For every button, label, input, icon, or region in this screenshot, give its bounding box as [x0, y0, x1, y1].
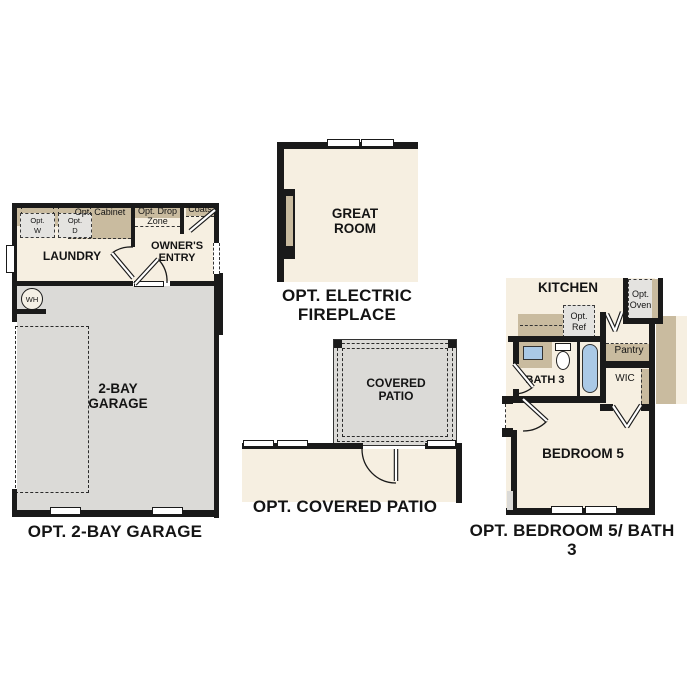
patio-caption: OPT. COVERED PATIO — [250, 497, 440, 516]
entry-opening-dashed — [213, 243, 220, 274]
bathtub — [582, 344, 598, 393]
coats-label: Coats — [184, 204, 216, 214]
wall — [12, 281, 133, 286]
wall — [219, 273, 223, 335]
garage-room-label: 2-BAY GARAGE — [73, 381, 163, 411]
garage-caption: OPT. 2-BAY GARAGE — [23, 522, 207, 541]
bedroom-window — [551, 506, 583, 514]
wall — [600, 312, 606, 403]
wall — [513, 389, 519, 397]
outside-floor — [676, 316, 687, 404]
pantry-shelf-dash — [606, 343, 652, 344]
wall — [641, 404, 655, 411]
wall — [658, 278, 663, 324]
house-window — [243, 440, 274, 447]
garage-window — [50, 507, 81, 515]
covered-patio-label: COVERED PATIO — [356, 377, 436, 404]
owners-entry-label: OWNER'S ENTRY — [142, 240, 212, 265]
pantry-label: Pantry — [606, 345, 652, 356]
bedroom-window — [585, 506, 617, 514]
kitchen-counter-dash — [520, 325, 562, 326]
water-heater-label: WH — [26, 295, 39, 304]
wic-label: WIC — [604, 373, 646, 384]
bath-sink — [523, 346, 543, 360]
floorplan-sheet: Opt. W Opt. D WH Opt. Cabinet Opt. Drop … — [0, 0, 687, 687]
bedroom-opening-dashed — [505, 404, 506, 428]
great-room-window — [361, 139, 394, 147]
coats-dash — [186, 216, 214, 217]
wall — [600, 404, 613, 411]
water-heater: WH — [21, 288, 43, 310]
wall — [502, 396, 513, 404]
opt-washer-label: Opt. W — [28, 216, 48, 235]
great-room-caption: OPT. ELECTRIC FIREPLACE — [257, 286, 437, 324]
opt-oven-label: Opt. Oven — [629, 289, 652, 311]
opt-oven-box: Opt. Oven — [628, 279, 653, 320]
house-interior-floor — [242, 449, 462, 502]
wall — [277, 142, 284, 282]
wall — [577, 342, 580, 396]
toilet-bowl — [556, 351, 570, 370]
opt-ref-label: Opt. Ref — [568, 311, 590, 333]
patio-post — [334, 340, 342, 348]
opt-dryer-label: Opt. D — [65, 216, 85, 235]
wall — [508, 336, 606, 342]
wall — [170, 281, 219, 286]
bath3-label: BATH 3 — [516, 374, 574, 386]
wall — [15, 309, 46, 314]
opt-cabinet-label: Opt. Cabinet — [70, 207, 130, 217]
opt-drop-zone-label: Opt. Drop Zone — [133, 206, 182, 226]
opt-ref-box: Opt. Ref — [563, 305, 595, 338]
wall — [456, 443, 462, 503]
bedroom5-label: BEDROOM 5 — [533, 446, 633, 461]
great-room-label: GREAT ROOM — [313, 206, 397, 236]
patio-post — [448, 340, 456, 348]
garage-door-sill — [134, 281, 164, 287]
kitchen-label: KITCHEN — [532, 280, 604, 295]
wall — [600, 361, 655, 368]
house-window — [277, 440, 308, 447]
wall — [12, 489, 17, 517]
great-room-window — [327, 139, 360, 147]
wall — [12, 510, 219, 517]
laundry-label: LAUNDRY — [37, 250, 107, 263]
toilet-tank — [555, 343, 571, 351]
bedroom-caption: OPT. BEDROOM 5/ BATH 3 — [464, 521, 680, 559]
outside-cabinetry — [656, 316, 676, 404]
opt-washer-box: Opt. W — [20, 213, 55, 238]
wall-cut — [507, 491, 513, 510]
wall — [506, 396, 600, 403]
laundry-window — [6, 245, 15, 273]
fireplace-insert — [286, 196, 293, 246]
house-window — [427, 440, 456, 447]
garage-window — [152, 507, 183, 515]
wall — [513, 336, 519, 364]
